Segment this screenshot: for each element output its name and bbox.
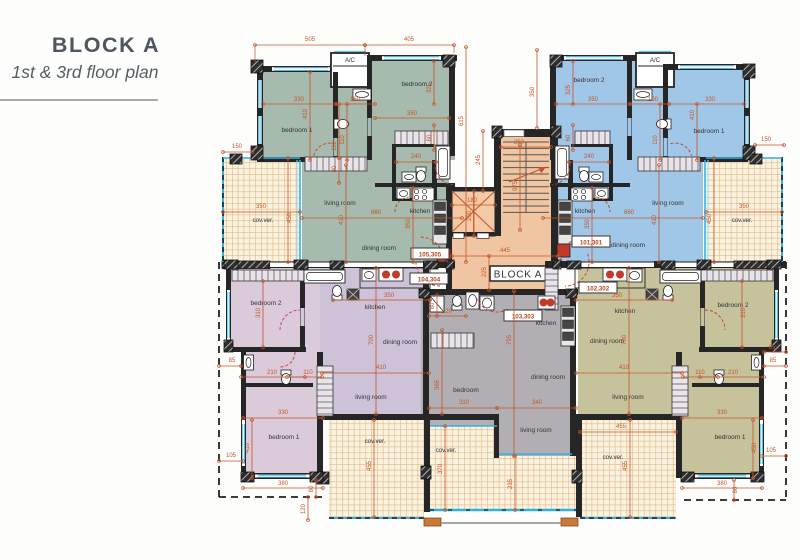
svg-text:kitchen: kitchen [575,208,596,215]
svg-text:330: 330 [705,97,716,103]
svg-text:kitchen: kitchen [365,304,386,311]
svg-text:102,302: 102,302 [587,286,610,293]
svg-text:80: 80 [332,165,338,172]
svg-text:103,303: 103,303 [512,314,535,321]
svg-text:350: 350 [530,86,536,97]
svg-text:living room: living room [652,200,683,207]
svg-text:350: 350 [406,218,412,229]
svg-text:1st & 3rd floor plan: 1st & 3rd floor plan [12,62,159,82]
svg-text:975: 975 [513,180,519,191]
svg-text:65: 65 [769,345,776,351]
svg-text:250: 250 [514,140,525,146]
svg-text:660: 660 [624,210,635,216]
svg-text:235: 235 [508,478,514,489]
svg-text:210: 210 [728,370,739,376]
svg-text:660: 660 [371,210,382,216]
svg-text:350: 350 [384,293,395,299]
svg-text:455: 455 [616,424,627,430]
svg-text:living room: living room [355,394,386,401]
svg-text:dining room: dining room [611,242,645,249]
svg-text:410: 410 [303,108,309,119]
svg-text:245: 245 [476,154,482,165]
svg-text:101,301: 101,301 [580,240,603,247]
svg-text:340: 340 [532,400,543,406]
svg-text:cov.ver.: cov.ver. [365,438,386,445]
svg-text:cov.ver.: cov.ver. [253,217,274,224]
svg-text:104,304: 104,304 [418,277,441,284]
svg-text:325: 325 [566,84,572,95]
svg-text:160: 160 [648,97,659,103]
svg-text:living room: living room [520,427,551,434]
svg-text:120: 120 [442,309,453,315]
svg-text:bedroom 2: bedroom 2 [573,77,604,84]
svg-text:dining room: dining room [362,245,396,252]
svg-text:dining room: dining room [590,338,624,345]
svg-text:80: 80 [430,302,436,309]
svg-text:350: 350 [612,293,623,299]
svg-text:325: 325 [427,82,433,93]
svg-text:330: 330 [717,410,728,416]
svg-text:80: 80 [309,485,315,492]
svg-text:60: 60 [427,134,433,141]
svg-text:350: 350 [256,204,267,210]
svg-text:310: 310 [459,400,470,406]
svg-text:350: 350 [588,97,599,103]
svg-text:380: 380 [717,481,728,487]
svg-text:240: 240 [411,154,422,160]
svg-text:bedroom 1: bedroom 1 [268,434,299,441]
svg-text:505: 505 [305,37,316,43]
svg-text:450: 450 [752,442,758,453]
svg-text:bedroom 1: bedroom 1 [714,434,745,441]
svg-text:bedroom 2: bedroom 2 [250,300,281,307]
svg-text:380: 380 [278,481,289,487]
svg-text:60: 60 [566,134,572,141]
svg-text:BLOCK A: BLOCK A [52,33,160,57]
svg-text:350: 350 [407,111,418,117]
svg-text:700: 700 [369,334,375,345]
svg-text:110: 110 [653,135,659,145]
svg-text:330: 330 [278,410,289,416]
svg-text:cov.ver.: cov.ver. [436,447,457,454]
svg-text:living room: living room [612,394,643,401]
svg-text:370: 370 [438,463,444,474]
svg-text:living room: living room [324,200,355,207]
svg-text:450: 450 [287,212,293,223]
svg-text:410: 410 [619,365,630,371]
svg-text:450: 450 [707,213,713,224]
svg-text:cov.ver.: cov.ver. [603,454,624,461]
svg-text:410: 410 [652,214,658,225]
svg-text:120: 120 [301,503,307,514]
svg-text:410: 410 [339,214,345,225]
svg-text:110: 110 [303,370,313,376]
svg-text:410: 410 [245,442,251,453]
svg-text:310: 310 [256,307,262,318]
svg-text:bedroom 1: bedroom 1 [693,128,724,135]
svg-text:110: 110 [695,370,705,376]
svg-text:200: 200 [467,210,473,221]
svg-text:A/C: A/C [345,57,356,64]
svg-text:110: 110 [340,135,346,145]
svg-text:795: 795 [507,334,513,345]
svg-text:dining room: dining room [531,374,565,381]
svg-text:dining room: dining room [383,339,417,346]
svg-text:150: 150 [761,137,772,143]
svg-text:455: 455 [623,460,629,471]
svg-text:BLOCK A: BLOCK A [494,270,542,281]
svg-text:455: 455 [367,460,373,471]
svg-text:615: 615 [459,115,465,126]
svg-text:445: 445 [500,248,511,254]
svg-text:310: 310 [741,307,747,318]
svg-text:210: 210 [267,370,278,376]
svg-text:180: 180 [467,198,478,204]
svg-text:405: 405 [404,37,415,43]
svg-text:A/C: A/C [650,57,661,64]
svg-text:bedroom: bedroom [453,387,479,394]
svg-text:85: 85 [229,358,236,364]
svg-text:365: 365 [435,379,441,390]
svg-text:cov.ver.: cov.ver. [732,217,753,224]
svg-text:410: 410 [376,365,387,371]
svg-text:85: 85 [770,358,777,364]
svg-text:bedroom 2: bedroom 2 [717,302,748,309]
svg-text:240: 240 [584,154,595,160]
svg-text:225: 225 [482,266,488,277]
svg-text:350: 350 [739,204,750,210]
svg-text:80: 80 [733,486,739,493]
svg-text:160: 160 [350,97,361,103]
svg-text:kitchen: kitchen [615,308,636,315]
svg-text:105: 105 [226,453,237,459]
svg-text:410: 410 [690,109,696,120]
svg-text:700: 700 [622,334,628,345]
svg-text:330: 330 [294,97,305,103]
svg-text:105: 105 [766,448,777,454]
svg-text:150: 150 [232,144,243,150]
svg-text:bedroom 1: bedroom 1 [281,127,312,134]
svg-text:105,305: 105,305 [419,252,442,259]
svg-text:110: 110 [332,141,338,151]
svg-text:350: 350 [585,218,591,229]
